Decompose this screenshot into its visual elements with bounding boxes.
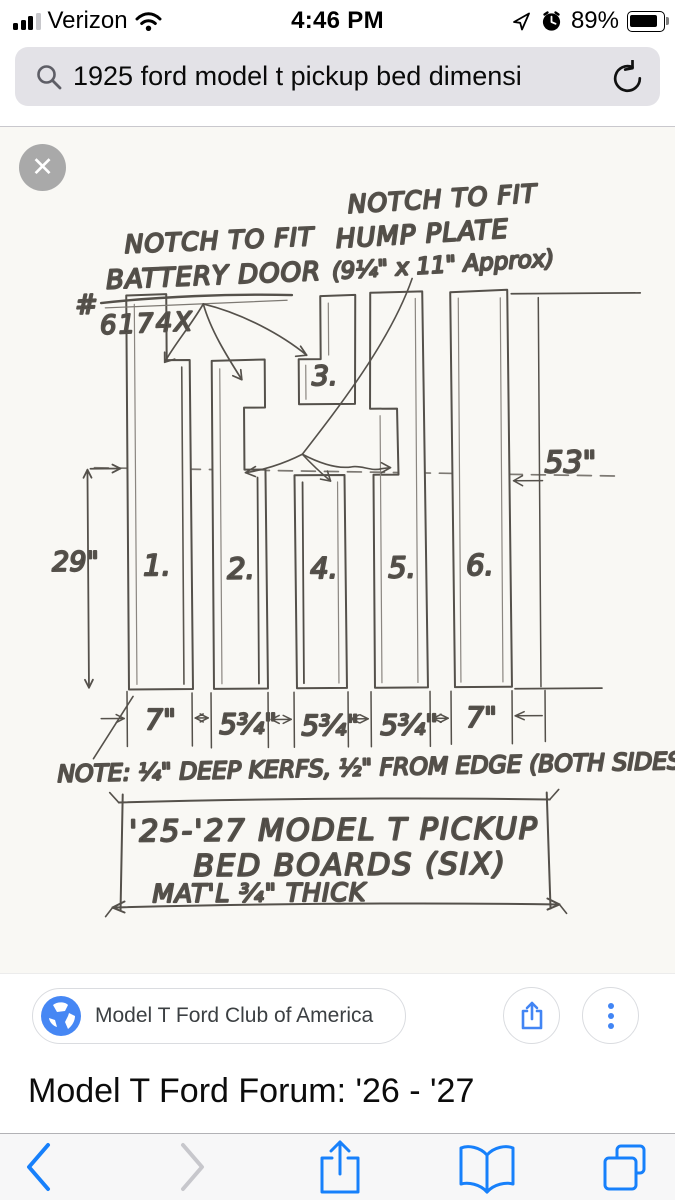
forward-button[interactable] bbox=[183, 1145, 202, 1189]
bookmarks-button[interactable] bbox=[461, 1147, 513, 1192]
alarm-clock-icon bbox=[540, 10, 563, 32]
battery-icon bbox=[627, 11, 665, 32]
part-number-hash: # bbox=[75, 289, 99, 321]
safari-toolbar bbox=[0, 1133, 675, 1200]
search-icon bbox=[35, 63, 63, 91]
status-bar: Verizon 4:46 PM 89% bbox=[0, 0, 675, 42]
battery-door-line1: NOTCH TO FIT bbox=[124, 222, 316, 259]
dim-53 bbox=[511, 293, 643, 689]
search-text-fade bbox=[538, 53, 588, 101]
back-chevron-icon bbox=[29, 1145, 48, 1189]
forward-chevron-icon bbox=[183, 1145, 202, 1189]
diagram-image[interactable]: 29" 53" bbox=[0, 127, 675, 973]
hump-plate-line1: NOTCH TO FIT bbox=[347, 179, 539, 219]
source-site-label: Model T Ford Club of America bbox=[95, 1004, 373, 1028]
status-right: 89% bbox=[511, 0, 665, 42]
source-site-button[interactable]: Model T Ford Club of America bbox=[32, 988, 406, 1044]
search-query-text: 1925 ford model t pickup bed dimensi bbox=[73, 61, 613, 92]
back-button[interactable] bbox=[29, 1145, 48, 1189]
close-button[interactable]: ✕ bbox=[19, 144, 66, 191]
bookmarks-book-icon bbox=[461, 1147, 513, 1192]
globe-icon bbox=[41, 996, 81, 1036]
part-number: 6174X bbox=[99, 307, 194, 341]
board-3-label: 3. bbox=[312, 361, 338, 392]
hump-plate-annotation: NOTCH TO FIT HUMP PLATE (9¼" x 11" Appro… bbox=[327, 178, 555, 285]
note-text: NOTE: ¼" DEEP KERFS, ½" FROM EDGE (BOTH … bbox=[57, 747, 675, 788]
share-button[interactable] bbox=[503, 987, 560, 1044]
board-6-label: 6. bbox=[466, 548, 494, 582]
board-5-outline bbox=[369, 291, 428, 687]
clock-label: 4:46 PM bbox=[291, 7, 384, 35]
board-2-label: 2. bbox=[227, 552, 255, 586]
title-line1: '25-'27 MODEL T PICKUP bbox=[129, 812, 539, 850]
close-icon: ✕ bbox=[31, 154, 54, 181]
more-options-button[interactable] bbox=[582, 987, 639, 1044]
toolbar-share-icon bbox=[322, 1142, 358, 1192]
tabs-button[interactable] bbox=[605, 1146, 644, 1189]
share-icon bbox=[517, 1000, 547, 1032]
width-label-5: 7" bbox=[466, 701, 497, 734]
width-label-2: 5¾" bbox=[219, 707, 277, 740]
bed-boards-diagram: 29" 53" bbox=[0, 127, 675, 973]
safari-url-bar: 1925 ford model t pickup bed dimensi bbox=[0, 42, 675, 127]
width-label-1: 7" bbox=[145, 703, 176, 736]
battery-percent-label: 89% bbox=[571, 7, 619, 35]
board-4-label: 4. bbox=[310, 551, 338, 585]
tabs-icon bbox=[605, 1146, 644, 1189]
title-line3: MAT'L ¾" THICK bbox=[152, 878, 368, 909]
width-label-3: 5¾" bbox=[301, 709, 359, 742]
result-title-link[interactable]: Model T Ford Forum: '26 - '27 bbox=[28, 1072, 658, 1111]
dim-29-label: 29" bbox=[52, 547, 99, 578]
width-label-4: 5¾" bbox=[380, 708, 438, 741]
dim-53-label: 53" bbox=[544, 445, 596, 480]
board-1-label: 1. bbox=[143, 548, 171, 582]
board-5-label: 5. bbox=[388, 550, 416, 584]
reload-icon[interactable] bbox=[610, 60, 644, 96]
location-arrow-icon bbox=[511, 11, 532, 32]
hump-plate-line2: HUMP PLATE bbox=[335, 215, 510, 255]
toolbar-share-button[interactable] bbox=[322, 1142, 358, 1192]
search-input[interactable]: 1925 ford model t pickup bed dimensi bbox=[15, 47, 660, 106]
more-vertical-icon bbox=[606, 1002, 616, 1030]
battery-door-annotation: NOTCH TO FIT BATTERY DOOR # 6174X bbox=[72, 222, 324, 342]
attribution-bar: Model T Ford Club of America bbox=[0, 973, 675, 1073]
battery-door-line2: BATTERY DOOR bbox=[106, 257, 322, 296]
phone-screen: Verizon 4:46 PM 89% bbox=[0, 0, 675, 1200]
